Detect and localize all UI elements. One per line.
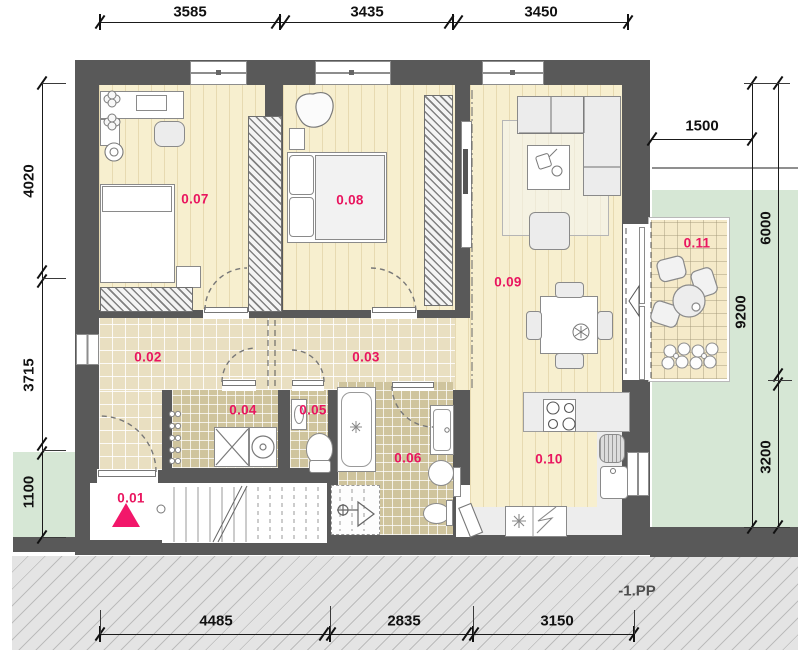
dim-extension: [744, 83, 790, 84]
dim-extension: [100, 610, 101, 634]
kitchen-stool: [599, 434, 625, 463]
sliding-door-panel: [639, 227, 645, 304]
sofa-chaise: [583, 96, 621, 196]
dim-extension: [634, 610, 635, 634]
ground-hatch: [12, 556, 798, 650]
dim-extension: [744, 527, 790, 528]
vanity-basin: [433, 409, 451, 451]
staircase: [162, 483, 327, 543]
dim-extension: [42, 278, 66, 279]
bed-pillow: [289, 197, 314, 237]
dim-label-right-6000: 6000: [758, 211, 775, 244]
dim-label-left-1: 4020: [21, 164, 38, 197]
dim-label-left-3: 1100: [21, 476, 38, 509]
dim-label-top-1: 3585: [173, 4, 206, 21]
room-label-0-09: 0.09: [494, 275, 521, 290]
stove: [543, 399, 576, 432]
window-bedroom-08: [315, 61, 391, 85]
door-leaf-bedroom-07: [204, 307, 248, 313]
dim-extension: [330, 606, 331, 634]
hall-floor-lower: [99, 390, 162, 470]
bed-pillow: [102, 186, 172, 212]
dim-extension: [42, 83, 66, 84]
bed-pillow: [289, 155, 314, 195]
room-label-0-05: 0.05: [299, 403, 326, 418]
dim-label-right-3200: 3200: [758, 440, 775, 473]
washing-machine: [249, 427, 277, 467]
room-label-0-07: 0.07: [181, 192, 208, 207]
dim-label-top-3: 3450: [524, 4, 557, 21]
wardrobe: [424, 95, 453, 306]
floor-plan-canvas: 0.01 0.02 0.03 0.04 0.05 0.06 0.07 0.08 …: [0, 0, 798, 650]
dim-extension: [42, 537, 66, 538]
room-label-0-11: 0.11: [684, 236, 711, 251]
retaining-wall-left: [13, 537, 82, 552]
window-hall-left: [76, 334, 99, 365]
dim-line-1500: [652, 139, 752, 141]
dining-chair: [526, 311, 542, 340]
dining-table: [540, 296, 598, 354]
dim-tick: [627, 14, 629, 30]
kitchen-counter: [523, 392, 630, 432]
dim-label-left-2: 3715: [21, 358, 38, 391]
entrance-triangle-marker: [112, 503, 140, 527]
armchair: [154, 121, 185, 147]
dim-label-1500: 1500: [685, 118, 718, 135]
room-label-0-04: 0.04: [229, 403, 256, 418]
dim-line-right-inner: [752, 83, 754, 527]
garden-top-line: [652, 167, 798, 169]
wardrobe: [100, 287, 193, 312]
window-bedroom-07: [190, 61, 247, 85]
toilet-tank: [446, 500, 453, 526]
hall-living-passage: [455, 318, 470, 390]
dim-line-right-outer: [778, 83, 780, 527]
dining-chair: [555, 353, 584, 369]
coffee-table: [527, 145, 570, 190]
monitor: [136, 95, 167, 111]
dim-label-right-9200: 9200: [733, 295, 750, 328]
room-label-0-06: 0.06: [394, 451, 421, 466]
dim-label-bottom-1: 4485: [199, 613, 232, 630]
desk-cabinet: [100, 119, 120, 146]
window-living: [482, 61, 544, 85]
dim-label-bottom-3: 3150: [540, 613, 573, 630]
base-cabinets: [505, 506, 567, 537]
door-leaf-room-05: [292, 380, 324, 386]
wall-niche: [453, 467, 461, 497]
dim-line-top: [100, 22, 628, 24]
wardrobe: [248, 116, 282, 312]
dim-extension: [768, 380, 792, 381]
dim-extension: [473, 606, 474, 634]
round-sink: [428, 460, 454, 486]
dim-tick: [279, 14, 281, 30]
dining-chair: [555, 282, 584, 298]
level-label: -1.PP: [618, 583, 656, 600]
door-leaf-room-04: [222, 380, 256, 386]
room-label-0-03: 0.03: [352, 350, 379, 365]
dining-chair: [597, 311, 613, 340]
toilet-tank: [309, 460, 331, 473]
window-kitchen-right: [627, 452, 649, 496]
dim-label-top-2: 3435: [350, 4, 383, 21]
dim-label-bottom-2: 2835: [387, 613, 420, 630]
dim-tick: [99, 14, 101, 30]
basket: [289, 128, 305, 150]
terrace-sliding-door-opening: [623, 224, 650, 380]
dim-tick: [452, 14, 454, 30]
sliding-door-panel: [639, 306, 645, 380]
door-leaf-entrance: [98, 470, 156, 477]
dim-extension: [42, 450, 66, 451]
walk-in-shower: [331, 485, 380, 535]
bathtub-inner: [341, 392, 372, 467]
bedside-table: [176, 266, 201, 288]
kitchen-sink: [600, 466, 628, 499]
armchair: [529, 212, 570, 250]
room-label-0-02: 0.02: [134, 350, 161, 365]
tv: [463, 149, 468, 194]
room-label-0-01: 0.01: [117, 491, 144, 506]
room-label-0-08: 0.08: [336, 193, 363, 208]
room-label-0-10: 0.10: [535, 452, 562, 467]
dim-line-bottom: [100, 634, 634, 636]
dim-line-left: [42, 83, 44, 537]
door-leaf-bedroom-08: [372, 307, 416, 313]
door-leaf-room-06: [392, 382, 434, 388]
shower-tray: [214, 427, 249, 467]
